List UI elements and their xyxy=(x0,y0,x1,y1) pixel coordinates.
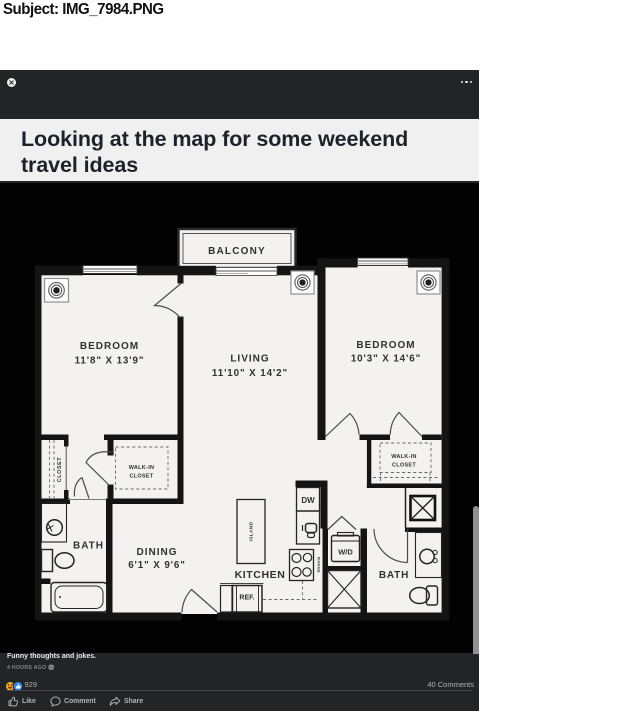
svg-text:BEDROOM: BEDROOM xyxy=(356,340,415,351)
svg-text:RANGE: RANGE xyxy=(317,557,322,573)
svg-text:11'10" X 14'2": 11'10" X 14'2" xyxy=(212,368,288,379)
svg-text:CLOSET: CLOSET xyxy=(57,457,63,482)
svg-text:CLOSET: CLOSET xyxy=(129,474,153,480)
svg-text:LIVING: LIVING xyxy=(230,354,269,365)
svg-text:BATH: BATH xyxy=(73,541,104,552)
svg-text:ISLAND: ISLAND xyxy=(249,521,254,541)
svg-text:10'3" X 14'6": 10'3" X 14'6" xyxy=(351,354,421,365)
svg-text:6'1" X 9'6": 6'1" X 9'6" xyxy=(128,560,186,571)
svg-text:W/D: W/D xyxy=(338,548,353,557)
svg-text:BEDROOM: BEDROOM xyxy=(80,341,139,352)
svg-text:REF.: REF. xyxy=(239,595,254,602)
svg-text:WALK-IN: WALK-IN xyxy=(129,465,155,471)
svg-text:DINING: DINING xyxy=(137,547,178,558)
svg-text:BALCONY: BALCONY xyxy=(208,246,266,257)
svg-text:11'8" X 13'9": 11'8" X 13'9" xyxy=(75,356,145,367)
svg-text:KITCHEN: KITCHEN xyxy=(235,569,286,581)
svg-text:DW: DW xyxy=(301,496,315,505)
svg-text:WALK-IN: WALK-IN xyxy=(391,454,417,460)
svg-text:CLOSET: CLOSET xyxy=(392,463,416,469)
svg-text:BATH: BATH xyxy=(379,570,409,581)
